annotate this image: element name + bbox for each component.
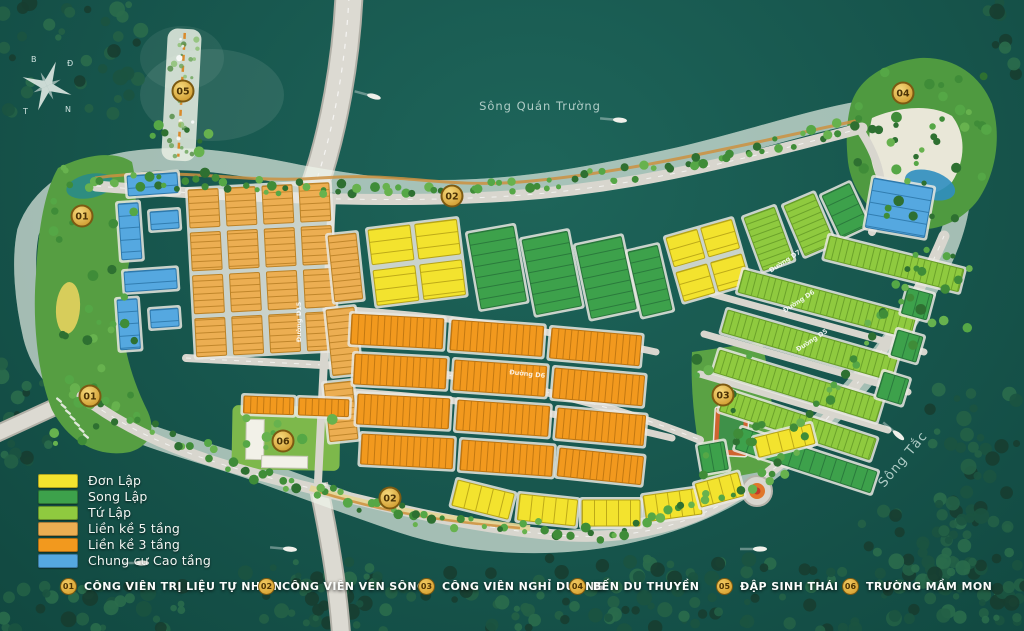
amenity-item-02: 02CÔNG VIÊN VEN SÔNG	[258, 578, 426, 595]
boat	[354, 89, 381, 101]
boat	[270, 545, 297, 553]
legend-label: Liền kề 5 tầng	[88, 521, 180, 536]
housing-block-song_lap	[465, 223, 530, 313]
legend-item-song_lap: Song Lập	[38, 490, 211, 503]
legend-label: Chung cư Cao tầng	[88, 553, 211, 568]
legend: Đơn LậpSong LậpTứ LậpLiền kề 5 tầngLiền …	[38, 474, 211, 567]
legend-label: Đơn Lập	[88, 473, 141, 488]
svg-text:03: 03	[716, 391, 729, 402]
housing-block-lien_ke_3	[447, 317, 547, 360]
legend-item-chung_cu: Chung cư Cao tầng	[38, 554, 211, 567]
map-marker-01[interactable]: 01	[80, 386, 101, 407]
map-marker-02[interactable]: 02	[380, 488, 401, 509]
map-marker-04[interactable]: 04	[893, 83, 914, 104]
amenity-label: BẾN DU THUYỀN	[593, 580, 699, 593]
legend-item-lien_ke_3: Liền kề 3 tầng	[38, 538, 211, 551]
svg-text:02: 02	[445, 192, 458, 203]
housing-block-song_lap	[518, 228, 585, 318]
housing-block-chung_cu	[121, 265, 181, 295]
amenity-number-badge: 02	[258, 578, 275, 595]
legend-item-tu_lap: Tứ Lập	[38, 506, 211, 519]
masterplan-map: Đường D15Đường D6Đường D7Đường D6Đường D…	[0, 0, 1024, 631]
legend-swatch-don_lap	[38, 474, 78, 488]
housing-block-lien_ke_5	[185, 179, 341, 359]
amenity-number-badge: 06	[842, 578, 859, 595]
housing-block-chung_cu	[115, 199, 145, 263]
amenity-number-badge: 01	[60, 578, 77, 595]
housing-block-chung_cu	[147, 207, 183, 233]
housing-block-lien_ke_3	[347, 311, 447, 352]
housing-block-lien_ke_3	[240, 393, 297, 418]
housing-block-lien_ke_3	[552, 405, 649, 449]
legend-label: Liền kề 3 tầng	[88, 537, 180, 552]
housing-block-don_lap	[365, 216, 469, 309]
legend-item-lien_ke_5: Liền kề 5 tầng	[38, 522, 211, 535]
housing-block-lien_ke_3	[546, 325, 645, 369]
legend-label: Song Lập	[88, 489, 148, 504]
boat	[740, 546, 767, 551]
svg-text:05: 05	[176, 87, 189, 98]
legend-swatch-lien_ke_3	[38, 538, 78, 552]
svg-text:04: 04	[896, 89, 910, 100]
amenity-label: CÔNG VIÊN TRỊ LIỆU TỰ NHIÊN	[84, 580, 282, 593]
housing-block-lien_ke_3	[554, 445, 647, 488]
compass-north-label: B	[31, 55, 37, 64]
map-marker-01[interactable]: 01	[72, 206, 93, 227]
housing-block-lien_ke_3	[353, 391, 453, 432]
legend-label: Tứ Lập	[88, 505, 131, 520]
amenity-number-badge: 03	[418, 578, 435, 595]
amenity-number-badge: 04	[569, 578, 586, 595]
legend-swatch-lien_ke_5	[38, 522, 78, 536]
compass-east-label: Đ	[67, 59, 73, 68]
amenity-item-04: 04BẾN DU THUYỀN	[569, 578, 699, 595]
map-marker-05[interactable]: 05	[173, 81, 194, 102]
housing-block-lien_ke_3	[453, 397, 553, 440]
compass-west-label: T	[22, 107, 28, 116]
legend-item-don_lap: Đơn Lập	[38, 474, 211, 487]
amenity-label: TRƯỜNG MẦM MON	[866, 580, 992, 593]
river-label: Sông Quán Trường	[479, 99, 601, 113]
map-marker-06[interactable]: 06	[273, 431, 294, 452]
housing-block-song_lap	[695, 438, 732, 477]
housing-block-lien_ke_3	[357, 431, 457, 472]
housing-block-lien_ke_3	[295, 395, 352, 420]
amenity-label: CÔNG VIÊN VEN SÔNG	[282, 580, 426, 593]
legend-swatch-tu_lap	[38, 506, 78, 520]
housing-block-lien_ke_3	[457, 437, 557, 480]
svg-text:06: 06	[276, 437, 290, 448]
svg-text:01: 01	[75, 212, 88, 223]
map-marker-02[interactable]: 02	[442, 186, 463, 207]
housing-block-lien_ke_3	[549, 365, 648, 409]
compass-rose: B Đ N T	[14, 53, 81, 120]
amenity-bar: 01CÔNG VIÊN TRỊ LIỆU TỰ NHIÊN02CÔNG VIÊN…	[0, 578, 1024, 604]
housing-block-chung_cu	[147, 305, 183, 331]
amenity-item-01: 01CÔNG VIÊN TRỊ LIỆU TỰ NHIÊN	[60, 578, 282, 595]
svg-text:01: 01	[83, 392, 96, 403]
boat	[600, 116, 627, 124]
amenity-number-badge: 05	[716, 578, 733, 595]
housing-block-lien_ke_3	[350, 351, 450, 392]
legend-swatch-song_lap	[38, 490, 78, 504]
map-marker-03[interactable]: 03	[713, 385, 734, 406]
amenity-item-05: 05ĐẬP SINH THÁI	[716, 578, 838, 595]
amenity-label: ĐẬP SINH THÁI	[740, 580, 838, 593]
legend-swatch-chung_cu	[38, 554, 78, 568]
road-label: Đường D15	[295, 301, 303, 342]
compass-south-label: N	[65, 105, 71, 114]
amenity-item-06: 06TRƯỜNG MẦM MON	[842, 578, 992, 595]
svg-text:02: 02	[383, 494, 396, 505]
